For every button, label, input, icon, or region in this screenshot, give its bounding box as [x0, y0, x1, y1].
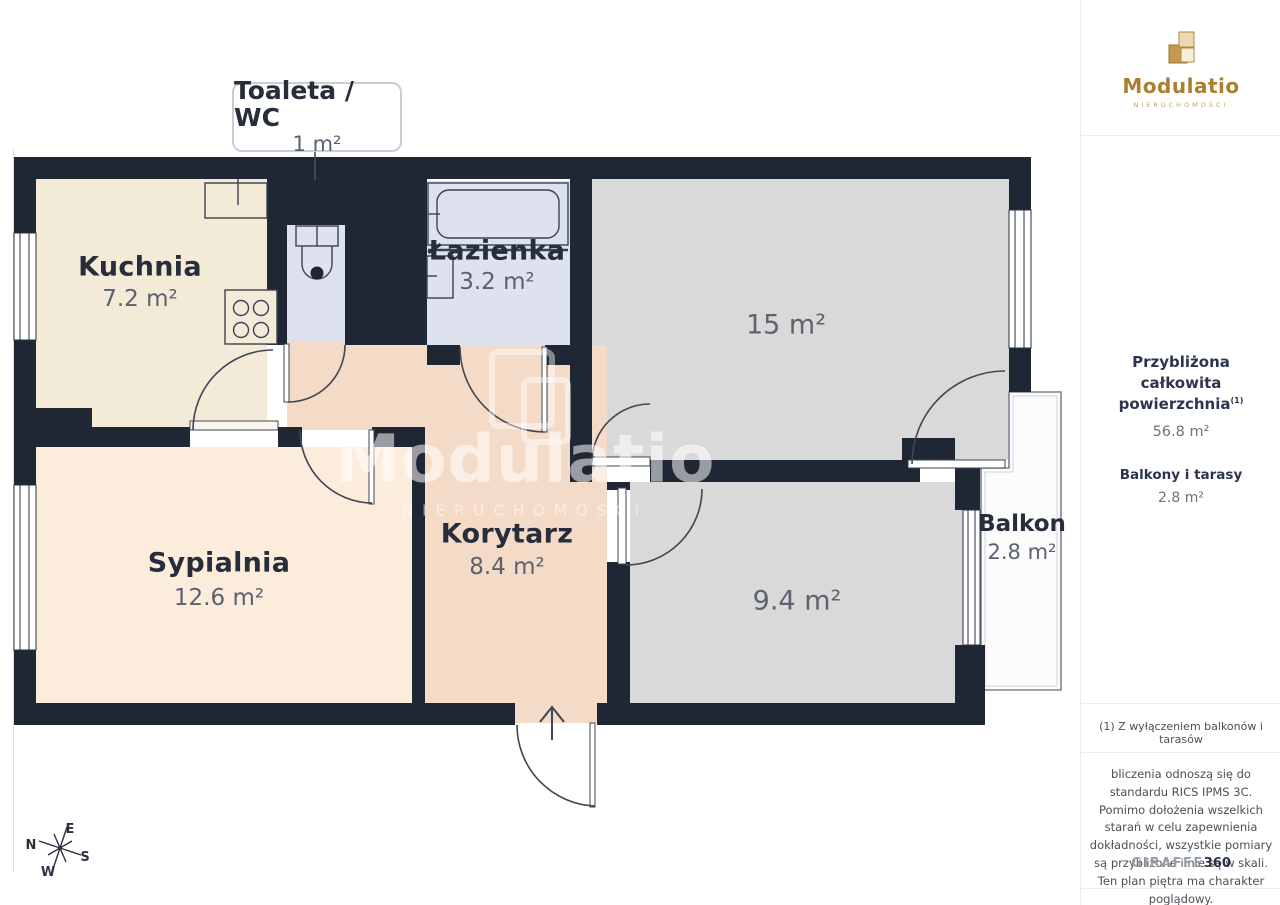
corridor-area: 8.4 m² [469, 554, 545, 580]
info-sidebar: Modulatio NIERUCHOMOŚCI Przybliżona całk… [1080, 0, 1280, 905]
toilet-callout-title: Toaleta / WC [234, 77, 400, 132]
floor-plan-page: N E S W Toaleta / WC 1 m² Kuchnia 7.2 m²… [0, 0, 1280, 905]
stove [225, 290, 277, 344]
bedroom-area: 12.6 m² [174, 585, 264, 611]
compass-e: E [66, 822, 75, 837]
brand-logo: Modulatio NIERUCHOMOŚCI [1081, 28, 1280, 109]
brand-logo-icon [1164, 28, 1198, 68]
floor-plan: N E S W Toaleta / WC 1 m² Kuchnia 7.2 m²… [0, 0, 1080, 905]
compass-s: S [80, 850, 89, 865]
giraffe360-brand-giraffe: GIRAFFE [1131, 856, 1204, 871]
bedroom-label: Sypialnia [148, 548, 291, 579]
kitchen-area: 7.2 m² [102, 286, 178, 312]
corridor-label: Korytarz [441, 519, 573, 550]
room15-area: 15 m² [746, 310, 826, 341]
disclaimer-text: bliczenia odnoszą się do standardu RICS … [1088, 766, 1274, 905]
bedroom-window [14, 485, 36, 650]
compass: N E S W [26, 822, 90, 880]
kitchen-label: Kuchnia [78, 252, 202, 283]
room94-area: 9.4 m² [753, 586, 842, 617]
sidebar-divider [1081, 135, 1280, 136]
bathroom-label: Łazienka [429, 236, 566, 267]
total-area-heading-line2: powierzchnia [1119, 395, 1231, 413]
kitchen-sink [205, 179, 267, 218]
total-area-heading-line1: Przybliżona całkowita [1132, 353, 1230, 392]
total-area-heading-sup: (1) [1230, 396, 1243, 405]
bathroom-area: 3.2 m² [459, 269, 535, 295]
sidebar-divider [1081, 888, 1280, 889]
toilet-callout-area: 1 m² [293, 132, 342, 157]
corridor-arm-floor [287, 342, 425, 430]
room15-window [1009, 210, 1031, 348]
giraffe360-brand-360: 360 [1204, 856, 1231, 871]
balcony-area: 2.8 m² [988, 540, 1057, 564]
brand-logo-title: Modulatio [1081, 74, 1280, 98]
sidebar-divider [1081, 703, 1280, 704]
toilet-callout: Toaleta / WC 1 m² [232, 82, 402, 152]
total-area-value: 56.8 m² [1091, 424, 1271, 440]
balconies-heading: Balkony i tarasy [1091, 467, 1271, 483]
compass-n: N [26, 838, 37, 853]
balcony-label: Balkon [978, 511, 1066, 537]
footnote: (1) Z wyłączeniem balkonów i tarasów [1086, 720, 1276, 746]
balconies-value: 2.8 m² [1091, 490, 1271, 506]
floor-plan-svg: N E S W [0, 0, 1080, 905]
sidebar-divider [1081, 752, 1280, 753]
compass-w: W [41, 865, 55, 880]
area-summary: Przybliżona całkowita powierzchnia(1) 56… [1091, 352, 1271, 506]
kitchen-window [14, 233, 36, 340]
brand-logo-subtitle: NIERUCHOMOŚCI [1081, 101, 1280, 109]
total-area-heading: Przybliżona całkowita powierzchnia(1) [1091, 352, 1271, 415]
giraffe360-brand: GIRAFFE360 [1081, 856, 1280, 871]
